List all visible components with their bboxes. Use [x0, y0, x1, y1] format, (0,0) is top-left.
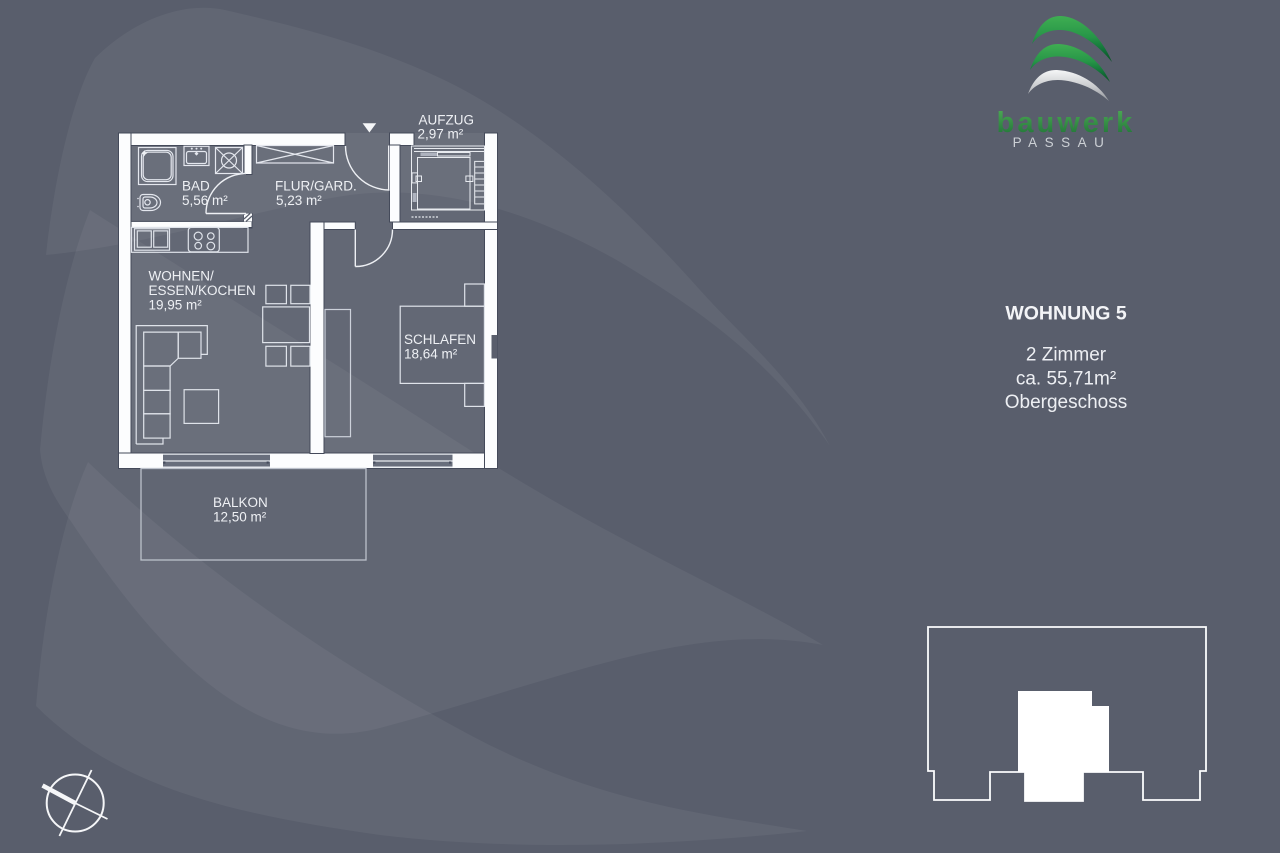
svg-text:BALKON: BALKON [213, 495, 268, 510]
svg-text:ESSEN/KOCHEN: ESSEN/KOCHEN [149, 283, 256, 298]
svg-text:19,95 m²: 19,95 m² [149, 298, 203, 313]
svg-text:5,56 m²: 5,56 m² [182, 193, 228, 208]
svg-text:BAD: BAD [182, 179, 210, 194]
svg-text:ca. 55,71m²: ca. 55,71m² [1016, 369, 1116, 390]
svg-text:2,97 m²: 2,97 m² [418, 127, 464, 142]
svg-text:SCHLAFEN: SCHLAFEN [404, 332, 476, 347]
svg-text:2 Zimmer: 2 Zimmer [1026, 345, 1107, 366]
svg-text:12,50 m²: 12,50 m² [213, 510, 267, 525]
svg-text:18,64 m²: 18,64 m² [404, 347, 458, 362]
svg-text:WOHNUNG 5: WOHNUNG 5 [1005, 303, 1126, 325]
svg-text:FLUR/GARD.: FLUR/GARD. [275, 179, 357, 194]
svg-text:5,23 m²: 5,23 m² [276, 193, 322, 208]
svg-text:WOHNEN/: WOHNEN/ [149, 269, 214, 284]
svg-text:AUFZUG: AUFZUG [419, 113, 475, 128]
svg-text:PASSAU: PASSAU [1013, 135, 1112, 150]
svg-text:Obergeschoss: Obergeschoss [1005, 392, 1128, 413]
